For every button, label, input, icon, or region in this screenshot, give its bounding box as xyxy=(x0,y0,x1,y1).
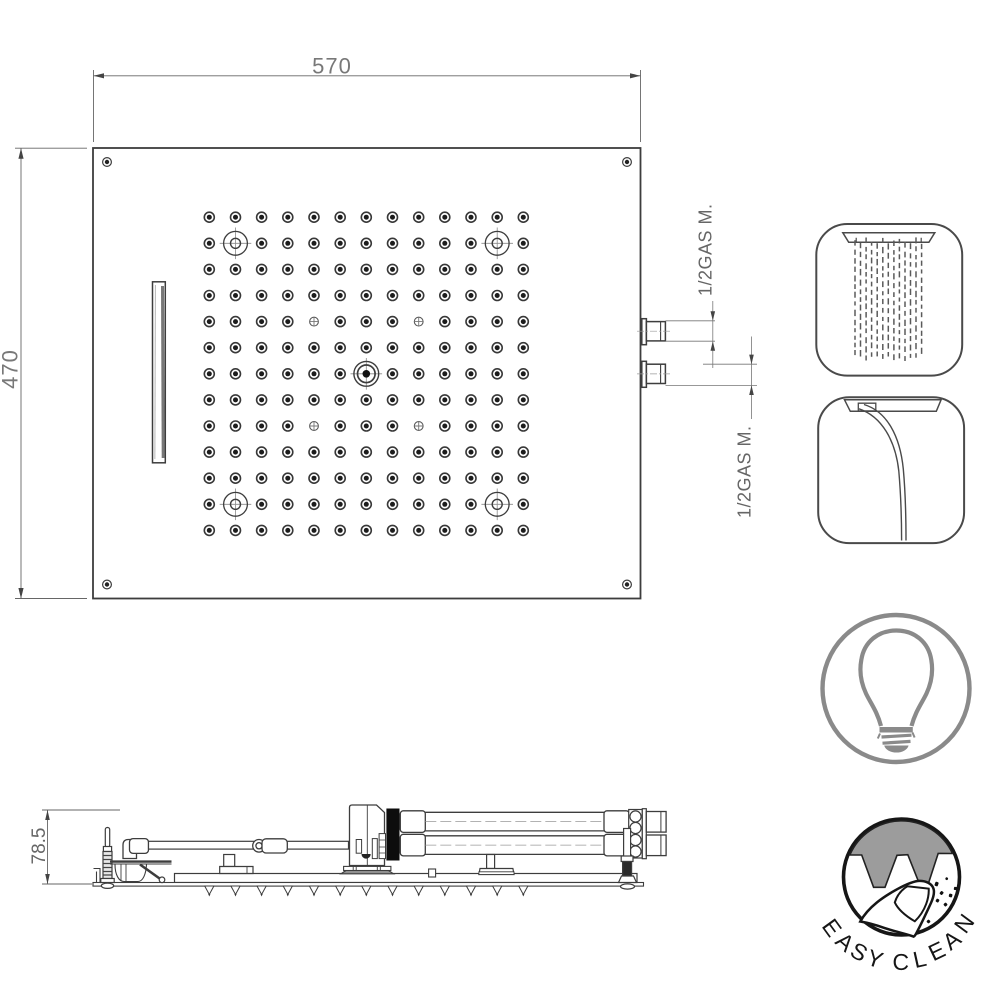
svg-text:470: 470 xyxy=(0,349,23,389)
svg-text:1/2GAS M.: 1/2GAS M. xyxy=(696,203,716,296)
svg-text:1/2GAS M.: 1/2GAS M. xyxy=(735,425,755,518)
svg-text:570: 570 xyxy=(312,54,352,79)
svg-text:C: C xyxy=(892,949,909,975)
svg-text:78.5: 78.5 xyxy=(29,828,50,865)
